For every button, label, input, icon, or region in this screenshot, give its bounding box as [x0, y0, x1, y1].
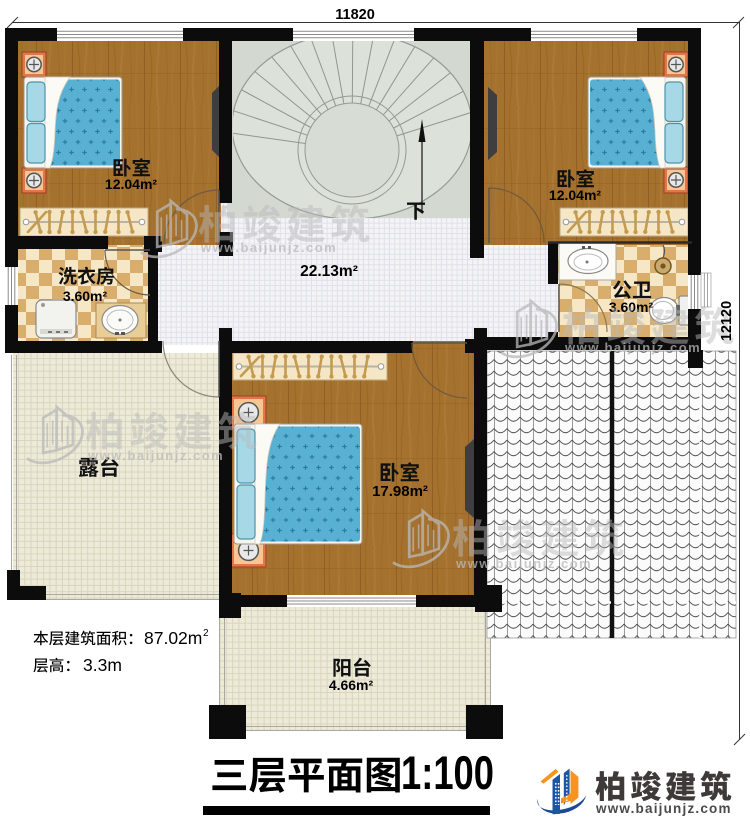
svg-text:3.3m: 3.3m — [83, 655, 122, 675]
svg-text:87.02m: 87.02m — [144, 628, 202, 648]
svg-text:www.baijunjz.com: www.baijunjz.com — [564, 340, 701, 355]
svg-text:12120: 12120 — [719, 301, 735, 341]
svg-text:12.04m²: 12.04m² — [105, 176, 157, 192]
svg-text:22.13m²: 22.13m² — [300, 263, 358, 280]
svg-text:2: 2 — [203, 628, 209, 639]
svg-text:11820: 11820 — [335, 7, 375, 23]
svg-text:www.baijunjz.com: www.baijunjz.com — [455, 556, 592, 571]
svg-text:12.04m²: 12.04m² — [549, 187, 601, 203]
svg-text:3.60m²: 3.60m² — [63, 288, 108, 304]
svg-text:www.baijunjz.com: www.baijunjz.com — [87, 448, 224, 463]
svg-text:1:100: 1:100 — [401, 746, 494, 799]
svg-text:www.baijunjz.com: www.baijunjz.com — [200, 240, 337, 255]
svg-text:17.98m²: 17.98m² — [372, 483, 428, 500]
svg-text:4.66m²: 4.66m² — [329, 677, 374, 693]
svg-text:www.baijunjz.com: www.baijunjz.com — [595, 801, 732, 816]
